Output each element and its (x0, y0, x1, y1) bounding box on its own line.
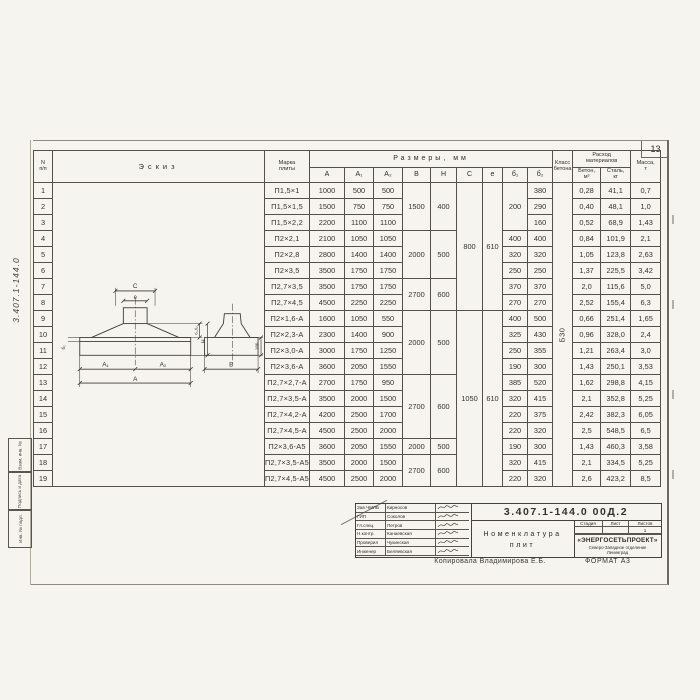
steel-mass-value: 225,5 (601, 263, 631, 279)
header-dim-h: Н (431, 168, 457, 183)
plate-mass-value: 4,15 (631, 375, 661, 391)
sheets-label: Листов (629, 520, 661, 527)
dim-b2-value: 400 (528, 231, 553, 247)
plate-mass-value: 3,0 (631, 343, 661, 359)
plate-mass-value: 5,25 (631, 391, 661, 407)
steel-mass-value: 423,2 (601, 471, 631, 487)
dim-a2-value: 1750 (374, 279, 403, 295)
stamp-box-podpis-data: Подпись и дата (8, 471, 32, 511)
stamp-box-inv-podl: Инв. № подл. (8, 509, 32, 548)
plate-mass-value: 1,0 (631, 199, 661, 215)
dim-b2-value: 320 (528, 471, 553, 487)
stage-label: Стадия (574, 520, 603, 527)
header-dim-a: А (310, 168, 345, 183)
steel-mass-value: 101,9 (601, 231, 631, 247)
plate-cross-section-sketch: С е А₁ А₂ А В б₁,б₂ Н б₂ 180 (54, 192, 264, 475)
stage-value (574, 527, 603, 534)
signature-squiggle (437, 548, 459, 555)
dim-a-value: 1000 (310, 183, 345, 199)
dim-h-value: 400 (431, 183, 457, 231)
dim-a1-value: 2500 (345, 471, 374, 487)
dim-a2-value: 1100 (374, 215, 403, 231)
steel-mass-value: 298,8 (601, 375, 631, 391)
header-consumption-bottom: материалов (573, 159, 630, 165)
header-dim-a1: А₁ (345, 168, 374, 183)
header-sketch: Эскиз (53, 151, 265, 183)
header-num-bottom: п/п (34, 167, 52, 173)
plate-mass-value: 6,5 (631, 423, 661, 439)
sketch-dim-a-label: А (133, 376, 138, 383)
dim-a2-value: 950 (374, 375, 403, 391)
sheet-label: Лист (603, 520, 629, 527)
concrete-volume-value: 1,62 (573, 375, 601, 391)
row-number: 5 (34, 247, 53, 263)
dim-a-value: 3600 (310, 359, 345, 375)
plate-mark: П1,5×2,2 (265, 215, 310, 231)
dim-a-value: 2800 (310, 247, 345, 263)
drawing-title-line2: плит (510, 540, 535, 549)
plate-mass-value: 8,5 (631, 471, 661, 487)
header-mark: Марка плиты (265, 151, 310, 183)
dim-a2-value: 1550 (374, 439, 403, 455)
concrete-volume-value: 2,42 (573, 407, 601, 423)
sketch-dim-b-label: В (229, 362, 233, 369)
dim-b2-value: 370 (528, 279, 553, 295)
plate-mark: П2×2,8 (265, 247, 310, 263)
stamp-label: Инв. № подл. (18, 514, 23, 543)
plate-mass-value: 2,63 (631, 247, 661, 263)
scan-artifact (672, 215, 674, 224)
dim-b1-value: 220 (503, 423, 528, 439)
concrete-class-rotated-label: Б30 (559, 325, 567, 344)
concrete-volume-value: 2,52 (573, 295, 601, 311)
header-steel: Сталь, кг (601, 168, 631, 183)
dim-b2-value: 300 (528, 439, 553, 455)
plate-mass-value: 6,3 (631, 295, 661, 311)
dim-a1-value: 2250 (345, 295, 374, 311)
dim-b-value: 2700 (403, 455, 431, 487)
dim-a2-value: 1050 (374, 231, 403, 247)
header-concrete-bottom: м³ (573, 175, 600, 181)
header-dimensions: Размеры, мм (310, 151, 553, 168)
header-dim-b2: б₂ (528, 168, 553, 183)
org-name: «ЭНЕРГОСЕТЬПРОЕКТ» (577, 537, 657, 544)
title-block-signatures: Зав.ЧМЛБКирносовГИПСоколовГл.спец.Петров… (356, 504, 472, 557)
dim-a-value: 3500 (310, 279, 345, 295)
drawing-title-line1: Номенклатура (483, 529, 561, 538)
header-dim-c: С (457, 168, 483, 183)
dim-b-value: 2700 (403, 375, 431, 439)
dim-b2-value: 320 (528, 247, 553, 263)
steel-mass-value: 68,9 (601, 215, 631, 231)
person-signature (436, 521, 469, 530)
dim-h-value: 500 (431, 311, 457, 375)
dim-a-value: 3600 (310, 439, 345, 455)
sheet-frame-bottom (30, 584, 668, 585)
plate-mass-value: 2,1 (631, 231, 661, 247)
concrete-volume-value: 2,1 (573, 391, 601, 407)
dim-h-value: 600 (431, 279, 457, 311)
dim-a2-value: 550 (374, 311, 403, 327)
steel-mass-value: 155,4 (601, 295, 631, 311)
sketch-dim-h-label: Н (201, 340, 207, 344)
plate-mark: П2,7×4,5-А (265, 423, 310, 439)
steel-mass-value: 382,3 (601, 407, 631, 423)
dim-b2-value: 290 (528, 199, 553, 215)
dim-h-value: 600 (431, 375, 457, 439)
concrete-volume-value: 1,37 (573, 263, 601, 279)
dim-a2-value: 900 (374, 327, 403, 343)
sketch-dim-b1b2-label: б₁,б₂ (193, 326, 198, 335)
dim-a2-value: 750 (374, 199, 403, 215)
dim-a-value: 4500 (310, 295, 345, 311)
dim-b2-value: 300 (528, 359, 553, 375)
plate-mark: П2,7×3,5-А5 (265, 455, 310, 471)
dim-e-value: 610 (483, 183, 503, 311)
plate-mark: П1,5×1 (265, 183, 310, 199)
plate-mass-value: 2,4 (631, 327, 661, 343)
header-dim-b1: б₁ (503, 168, 528, 183)
signature-squiggle (437, 522, 459, 529)
person-signature (436, 539, 469, 548)
header-steel-bottom: кг (601, 175, 630, 181)
dim-a1-value: 1050 (345, 311, 374, 327)
plate-mass-value: 6,05 (631, 407, 661, 423)
plate-mark: П2×3,6-А5 (265, 439, 310, 455)
sheet-value (603, 527, 629, 534)
dim-b1-value: 220 (503, 407, 528, 423)
header-row-number: N п/п (34, 151, 53, 183)
plate-mark: П2,7×4,5 (265, 295, 310, 311)
dim-a-value: 1500 (310, 199, 345, 215)
dim-a1-value: 1400 (345, 247, 374, 263)
vertical-doc-number: 3.407.1-144.0 (11, 234, 25, 346)
dim-b1-value: 400 (503, 231, 528, 247)
dim-b2-value: 250 (528, 263, 553, 279)
scan-artifact (672, 300, 674, 309)
plate-mark: П2×3,5 (265, 263, 310, 279)
row-number: 19 (34, 471, 53, 487)
plate-mark: П2,7×3,5-А (265, 391, 310, 407)
title-block-doc-number: 3.407.1-144.0 00Д.2 (471, 504, 661, 521)
header-mass: Масса, т (631, 151, 661, 183)
person-name: Кирносов (386, 504, 436, 513)
dim-a-value: 3500 (310, 263, 345, 279)
plate-mark: П2×3,6-А (265, 359, 310, 375)
scan-artifact (672, 390, 674, 399)
sketch-dim-e-label: е (133, 295, 137, 301)
plate-mark: П1,5×1,5 (265, 199, 310, 215)
header-concrete: Бетон, м³ (573, 168, 601, 183)
org-city: Ленинград (607, 550, 628, 555)
row-number: 3 (34, 215, 53, 231)
steel-mass-value: 460,3 (601, 439, 631, 455)
title-block-stage-grid: Стадия Лист Листов 1 (574, 520, 661, 535)
dim-a1-value: 1400 (345, 327, 374, 343)
dim-a2-value: 1500 (374, 391, 403, 407)
person-name: Канаевская (386, 530, 436, 539)
concrete-volume-value: 2,1 (573, 455, 601, 471)
dim-a1-value: 1750 (345, 375, 374, 391)
dim-b2-value: 375 (528, 407, 553, 423)
dim-b1-value: 220 (503, 471, 528, 487)
dim-a-value: 3000 (310, 343, 345, 359)
stamp-box-vzam-inv: Взам. инв. № (8, 438, 32, 473)
row-number: 7 (34, 279, 53, 295)
signature-squiggle (437, 504, 459, 511)
dim-b2-value: 270 (528, 295, 553, 311)
dim-h-value: 500 (431, 231, 457, 279)
dim-a1-value: 2500 (345, 407, 374, 423)
concrete-volume-value: 2,5 (573, 423, 601, 439)
concrete-volume-value: 0,84 (573, 231, 601, 247)
header-dim-e: е (483, 168, 503, 183)
dim-b1-value: 320 (503, 455, 528, 471)
plate-mark: П2,7×3,5 (265, 279, 310, 295)
dim-a1-value: 2050 (345, 359, 374, 375)
dim-a-value: 4200 (310, 407, 345, 423)
steel-mass-value: 115,6 (601, 279, 631, 295)
concrete-volume-value: 0,40 (573, 199, 601, 215)
sheet-frame-right (667, 140, 669, 585)
person-role: Гл.спец. (356, 521, 386, 530)
concrete-volume-value: 1,05 (573, 247, 601, 263)
header-dim-b: В (403, 168, 431, 183)
dim-a1-value: 1100 (345, 215, 374, 231)
concrete-volume-value: 1,43 (573, 439, 601, 455)
dim-b1-value: 200 (503, 183, 528, 231)
row-number: 18 (34, 455, 53, 471)
dim-b1-value: 400 (503, 311, 528, 327)
row-number: 15 (34, 407, 53, 423)
header-mass-bottom: т (631, 167, 660, 173)
sketch-dim-c-label: С (132, 283, 137, 290)
steel-mass-value: 41,1 (601, 183, 631, 199)
dim-a2-value: 1250 (374, 343, 403, 359)
stamp-label: Подпись и дата (18, 474, 23, 507)
sketch-dim-180-label: 180 (254, 342, 259, 350)
dim-a1-value: 500 (345, 183, 374, 199)
steel-mass-value: 250,1 (601, 359, 631, 375)
dim-b1-value: 320 (503, 247, 528, 263)
plate-mass-value: 0,7 (631, 183, 661, 199)
person-name: Чукинская (386, 539, 436, 548)
plate-mark: П2×3,0-А (265, 343, 310, 359)
signature-squiggle (437, 539, 459, 546)
row-number: 17 (34, 439, 53, 455)
plate-mass-value: 5,0 (631, 279, 661, 295)
steel-mass-value: 328,0 (601, 327, 631, 343)
dim-b2-value: 320 (528, 423, 553, 439)
plate-mark: П2×2,1 (265, 231, 310, 247)
dim-b1-value: 190 (503, 439, 528, 455)
row-number: 14 (34, 391, 53, 407)
sketch-cell: С е А₁ А₂ А В б₁,б₂ Н б₂ 180 (53, 183, 265, 487)
sketch-dim-a2-label: А₂ (159, 362, 166, 369)
dim-a2-value: 2000 (374, 471, 403, 487)
steel-mass-value: 263,4 (601, 343, 631, 359)
dim-c-value: 800 (457, 183, 483, 311)
concrete-volume-value: 0,52 (573, 215, 601, 231)
person-role: Зав.ЧМЛБ (356, 504, 386, 513)
steel-mass-value: 123,8 (601, 247, 631, 263)
dim-b-value: 2000 (403, 311, 431, 375)
concrete-volume-value: 2,0 (573, 279, 601, 295)
sheets-value: 1 (629, 527, 661, 534)
format-note: ФОРМАТ А3 (585, 558, 655, 565)
dim-b-value: 2000 (403, 231, 431, 279)
dim-a1-value: 1750 (345, 263, 374, 279)
dim-a2-value: 1750 (374, 263, 403, 279)
dim-a1-value: 1050 (345, 231, 374, 247)
dim-b1-value: 270 (503, 295, 528, 311)
dim-b2-value: 430 (528, 327, 553, 343)
title-block-organization: «ЭНЕРГОСЕТЬПРОЕКТ» Северо-Западное отдел… (574, 534, 661, 557)
dim-b1-value: 325 (503, 327, 528, 343)
dim-a2-value: 2250 (374, 295, 403, 311)
dim-h-value: 600 (431, 455, 457, 487)
dim-a-value: 2200 (310, 215, 345, 231)
dim-a2-value: 1700 (374, 407, 403, 423)
plate-mass-value: 1,43 (631, 215, 661, 231)
dim-a2-value: 500 (374, 183, 403, 199)
dim-a1-value: 1750 (345, 343, 374, 359)
dim-a1-value: 1750 (345, 279, 374, 295)
header-dim-a2: А₂ (374, 168, 403, 183)
plate-mark: П2,7×2,7-А (265, 375, 310, 391)
dim-a1-value: 2050 (345, 439, 374, 455)
dim-a-value: 3500 (310, 455, 345, 471)
plate-mass-value: 3,53 (631, 359, 661, 375)
title-block-drawing-title: Номенклатура плит (471, 520, 575, 557)
concrete-class-cell: Б30 (553, 183, 573, 487)
person-signature (436, 547, 469, 556)
dim-b1-value: 385 (503, 375, 528, 391)
dim-b1-value: 250 (503, 263, 528, 279)
steel-mass-value: 48,1 (601, 199, 631, 215)
header-consumption: Расход материалов (573, 151, 631, 168)
dim-b-value: 2000 (403, 439, 431, 455)
dim-b2-value: 380 (528, 183, 553, 199)
dim-h-value: 500 (431, 439, 457, 455)
row-number: 2 (34, 199, 53, 215)
row-number: 8 (34, 295, 53, 311)
row-number: 16 (34, 423, 53, 439)
dim-a2-value: 1400 (374, 247, 403, 263)
dim-a2-value: 2000 (374, 423, 403, 439)
steel-mass-value: 352,8 (601, 391, 631, 407)
concrete-volume-value: 0,66 (573, 311, 601, 327)
dim-c-value: 1050 (457, 311, 483, 487)
row-number: 13 (34, 375, 53, 391)
dim-b2-value: 355 (528, 343, 553, 359)
plate-mark: П2×1,6-А (265, 311, 310, 327)
plate-mass-value: 3,58 (631, 439, 661, 455)
stamp-label: Взам. инв. № (18, 441, 23, 469)
person-signature (436, 504, 469, 513)
dim-b1-value: 250 (503, 343, 528, 359)
concrete-volume-value: 2,6 (573, 471, 601, 487)
person-role: Н.контр. (356, 530, 386, 539)
dim-a1-value: 750 (345, 199, 374, 215)
dim-a-value: 4500 (310, 471, 345, 487)
plates-nomenclature-table: N п/п Эскиз Марка плиты Размеры, мм Клас… (33, 150, 661, 487)
row-number: 10 (34, 327, 53, 343)
header-concrete-class: Класс бетона (553, 151, 573, 183)
plate-mark: П2×2,3-А (265, 327, 310, 343)
signature-squiggle (437, 513, 459, 520)
concrete-volume-value: 1,43 (573, 359, 601, 375)
plate-mark: П2,7×4,2-А (265, 407, 310, 423)
person-name: Соколов (386, 513, 436, 522)
header-class-bottom: бетона (553, 167, 572, 173)
steel-mass-value: 548,5 (601, 423, 631, 439)
plate-mass-value: 3,42 (631, 263, 661, 279)
signature-squiggle (437, 530, 459, 537)
dim-a1-value: 2000 (345, 455, 374, 471)
sketch-dim-b2-left-label: б₂ (60, 345, 65, 350)
plate-mark: П2,7×4,5-А5 (265, 471, 310, 487)
steel-mass-value: 334,5 (601, 455, 631, 471)
dim-b-value: 1500 (403, 183, 431, 231)
scan-artifact (672, 470, 674, 479)
person-role: Проверил (356, 539, 386, 548)
dim-e-value: 610 (483, 311, 503, 487)
dim-b1-value: 320 (503, 391, 528, 407)
dim-b1-value: 190 (503, 359, 528, 375)
plate-mass-value: 5,25 (631, 455, 661, 471)
person-name: Петров (386, 521, 436, 530)
dim-a-value: 2300 (310, 327, 345, 343)
person-name: Беляевская (386, 547, 436, 556)
dim-b2-value: 415 (528, 455, 553, 471)
dim-a-value: 2100 (310, 231, 345, 247)
person-role: ГИП (356, 513, 386, 522)
header-mark-bottom: плиты (265, 167, 309, 173)
steel-mass-value: 251,4 (601, 311, 631, 327)
row-number: 4 (34, 231, 53, 247)
title-block: Зав.ЧМЛБКирносовГИПСоколовГл.спец.Петров… (355, 503, 662, 558)
dim-a-value: 2700 (310, 375, 345, 391)
person-role: Инженер (356, 547, 386, 556)
dim-a-value: 3500 (310, 391, 345, 407)
dim-b2-value: 160 (528, 215, 553, 231)
concrete-volume-value: 0,28 (573, 183, 601, 199)
copied-by-note: Копировала Владимирова Е.Б. (400, 558, 580, 565)
dim-b2-value: 520 (528, 375, 553, 391)
sketch-dim-a1-label: А₁ (102, 362, 108, 369)
table-row: 1 (34, 183, 661, 199)
dim-a-value: 1600 (310, 311, 345, 327)
concrete-volume-value: 0,96 (573, 327, 601, 343)
dim-b-value: 2700 (403, 279, 431, 311)
row-number: 11 (34, 343, 53, 359)
dim-b1-value: 370 (503, 279, 528, 295)
dim-b2-value: 415 (528, 391, 553, 407)
dim-b2-value: 500 (528, 311, 553, 327)
person-signature (436, 530, 469, 539)
dim-a2-value: 1550 (374, 359, 403, 375)
dim-a-value: 4500 (310, 423, 345, 439)
person-signature (436, 513, 469, 522)
sheet-frame-top (33, 140, 668, 141)
plate-mass-value: 1,65 (631, 311, 661, 327)
concrete-volume-value: 1,21 (573, 343, 601, 359)
row-number: 6 (34, 263, 53, 279)
row-number: 12 (34, 359, 53, 375)
dim-a1-value: 2500 (345, 423, 374, 439)
dim-a1-value: 2000 (345, 391, 374, 407)
